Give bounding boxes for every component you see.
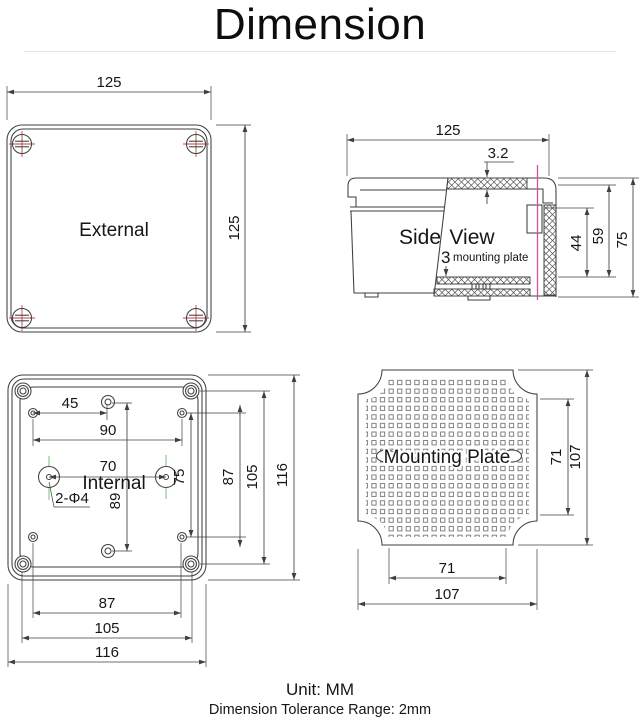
dim-label: 107 bbox=[567, 444, 584, 469]
dim-plate-slot-width: 71 bbox=[389, 548, 506, 584]
dim-plate-width: 107 bbox=[358, 549, 537, 610]
dim-label: 44 bbox=[568, 235, 585, 252]
dim-label: 89 bbox=[107, 493, 124, 510]
external-view: 125 125 External bbox=[7, 74, 251, 332]
dim-label: 105 bbox=[94, 620, 119, 637]
corner-boss bbox=[15, 383, 31, 399]
footer: Unit: MM Dimension Tolerance Range: 2mm bbox=[0, 680, 640, 718]
dim-external-width: 125 bbox=[7, 74, 211, 120]
dim-hole-offset: 45 bbox=[33, 395, 107, 420]
dim-label: 75 bbox=[614, 232, 631, 249]
dim-label: 116 bbox=[95, 644, 119, 661]
side-base-section bbox=[434, 289, 530, 296]
mounting-plate-label: Mounting Plate bbox=[384, 447, 511, 468]
callout-text: mounting plate bbox=[453, 252, 528, 264]
drawing-page: Dimension bbox=[0, 0, 640, 722]
side-view: 125 3.2 44 59 75 bbox=[347, 122, 639, 300]
dim-label: 75 bbox=[171, 469, 188, 486]
dim-label: 90 bbox=[100, 422, 117, 439]
mounting-plate-view: Mounting Plate 71 107 71 107 bbox=[358, 370, 593, 610]
internal-view-label: Internal bbox=[82, 473, 145, 494]
dim-label: 107 bbox=[434, 586, 459, 603]
dim-hole-span: 90 bbox=[33, 419, 182, 446]
side-lid-hook bbox=[527, 189, 553, 203]
side-wall-step bbox=[527, 205, 542, 233]
dim-label: 87 bbox=[99, 595, 116, 612]
dim-label: 45 bbox=[62, 395, 79, 412]
dim-label: 71 bbox=[439, 560, 456, 577]
mounting-plate-callout: 3 mounting plate bbox=[441, 248, 528, 276]
dim-label: 59 bbox=[590, 228, 607, 245]
dim-label: 71 bbox=[548, 449, 565, 466]
dim-label: 116 bbox=[274, 463, 291, 487]
side-view-label-word1: Side bbox=[399, 226, 441, 249]
dim-vertical-holes: 87 bbox=[220, 405, 240, 547]
callout-number: 3 bbox=[441, 248, 450, 267]
internal-view: 45 90 70 89 75 87 bbox=[8, 375, 300, 667]
corner-screw bbox=[183, 305, 209, 331]
side-wall-section bbox=[544, 205, 556, 295]
mounting-hole bbox=[178, 409, 187, 418]
corner-screw bbox=[9, 305, 35, 331]
side-lid-section bbox=[447, 178, 527, 189]
side-foot bbox=[365, 293, 378, 297]
technical-drawing-canvas: 125 125 External bbox=[0, 0, 640, 722]
dim-label: 125 bbox=[435, 122, 460, 139]
mounting-hole bbox=[178, 533, 187, 542]
dim-label: 87 bbox=[220, 469, 237, 486]
side-foot bbox=[468, 296, 490, 300]
dim-label: 125 bbox=[226, 215, 243, 240]
dim-label: 3.2 bbox=[488, 145, 509, 162]
corner-boss bbox=[183, 556, 199, 572]
corner-boss bbox=[183, 383, 199, 399]
mounting-hole bbox=[29, 533, 38, 542]
center-hole bbox=[102, 396, 115, 409]
dim-label: 125 bbox=[96, 74, 121, 91]
side-view-label-word2: View bbox=[449, 226, 495, 249]
side-body-left bbox=[351, 211, 434, 293]
side-lid-left-step bbox=[348, 186, 356, 207]
dim-side-width: 125 bbox=[347, 122, 549, 176]
dim-external-height: 125 bbox=[216, 125, 251, 332]
dim-lid-thickness: 3.2 bbox=[484, 145, 514, 204]
unit-note: Unit: MM bbox=[0, 680, 640, 700]
external-view-label: External bbox=[79, 220, 149, 241]
side-mounting-plate-section bbox=[437, 277, 530, 284]
tolerance-note: Dimension Tolerance Range: 2mm bbox=[0, 702, 640, 718]
corner-boss bbox=[15, 556, 31, 572]
dim-label: 105 bbox=[244, 464, 261, 489]
